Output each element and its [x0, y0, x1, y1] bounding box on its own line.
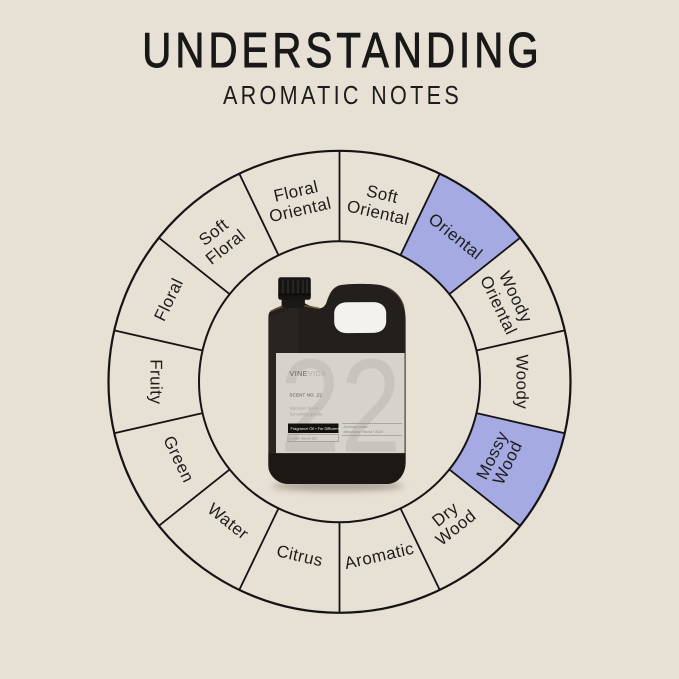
- svg-text:Fruity: Fruity: [146, 359, 165, 404]
- svg-text:Something grande: Something grande: [290, 412, 323, 417]
- svg-text:Citrus: Citrus: [275, 541, 325, 570]
- svg-text:Signature Scent: Signature Scent: [290, 406, 319, 411]
- svg-text:SCENT NO. 22: SCENT NO. 22: [290, 393, 323, 398]
- svg-text:VINEVIDA: VINEVIDA: [290, 369, 327, 378]
- svg-text:Floral: Floral: [150, 275, 187, 324]
- svg-text:Water: Water: [204, 499, 253, 543]
- svg-text:Aromatic: Aromatic: [343, 539, 416, 573]
- svg-text:Lorem ipsum dol: Lorem ipsum dol: [290, 437, 317, 441]
- svg-text:dimension • blend • 2024: dimension • blend • 2024: [344, 430, 384, 434]
- svg-text:Fragrance Oil • For Diffusers: Fragrance Oil • For Diffusers: [291, 426, 340, 431]
- svg-text:Aromatic notes: Aromatic notes: [344, 425, 368, 429]
- svg-text:Woody: Woody: [512, 354, 531, 409]
- svg-text:Green: Green: [159, 433, 198, 486]
